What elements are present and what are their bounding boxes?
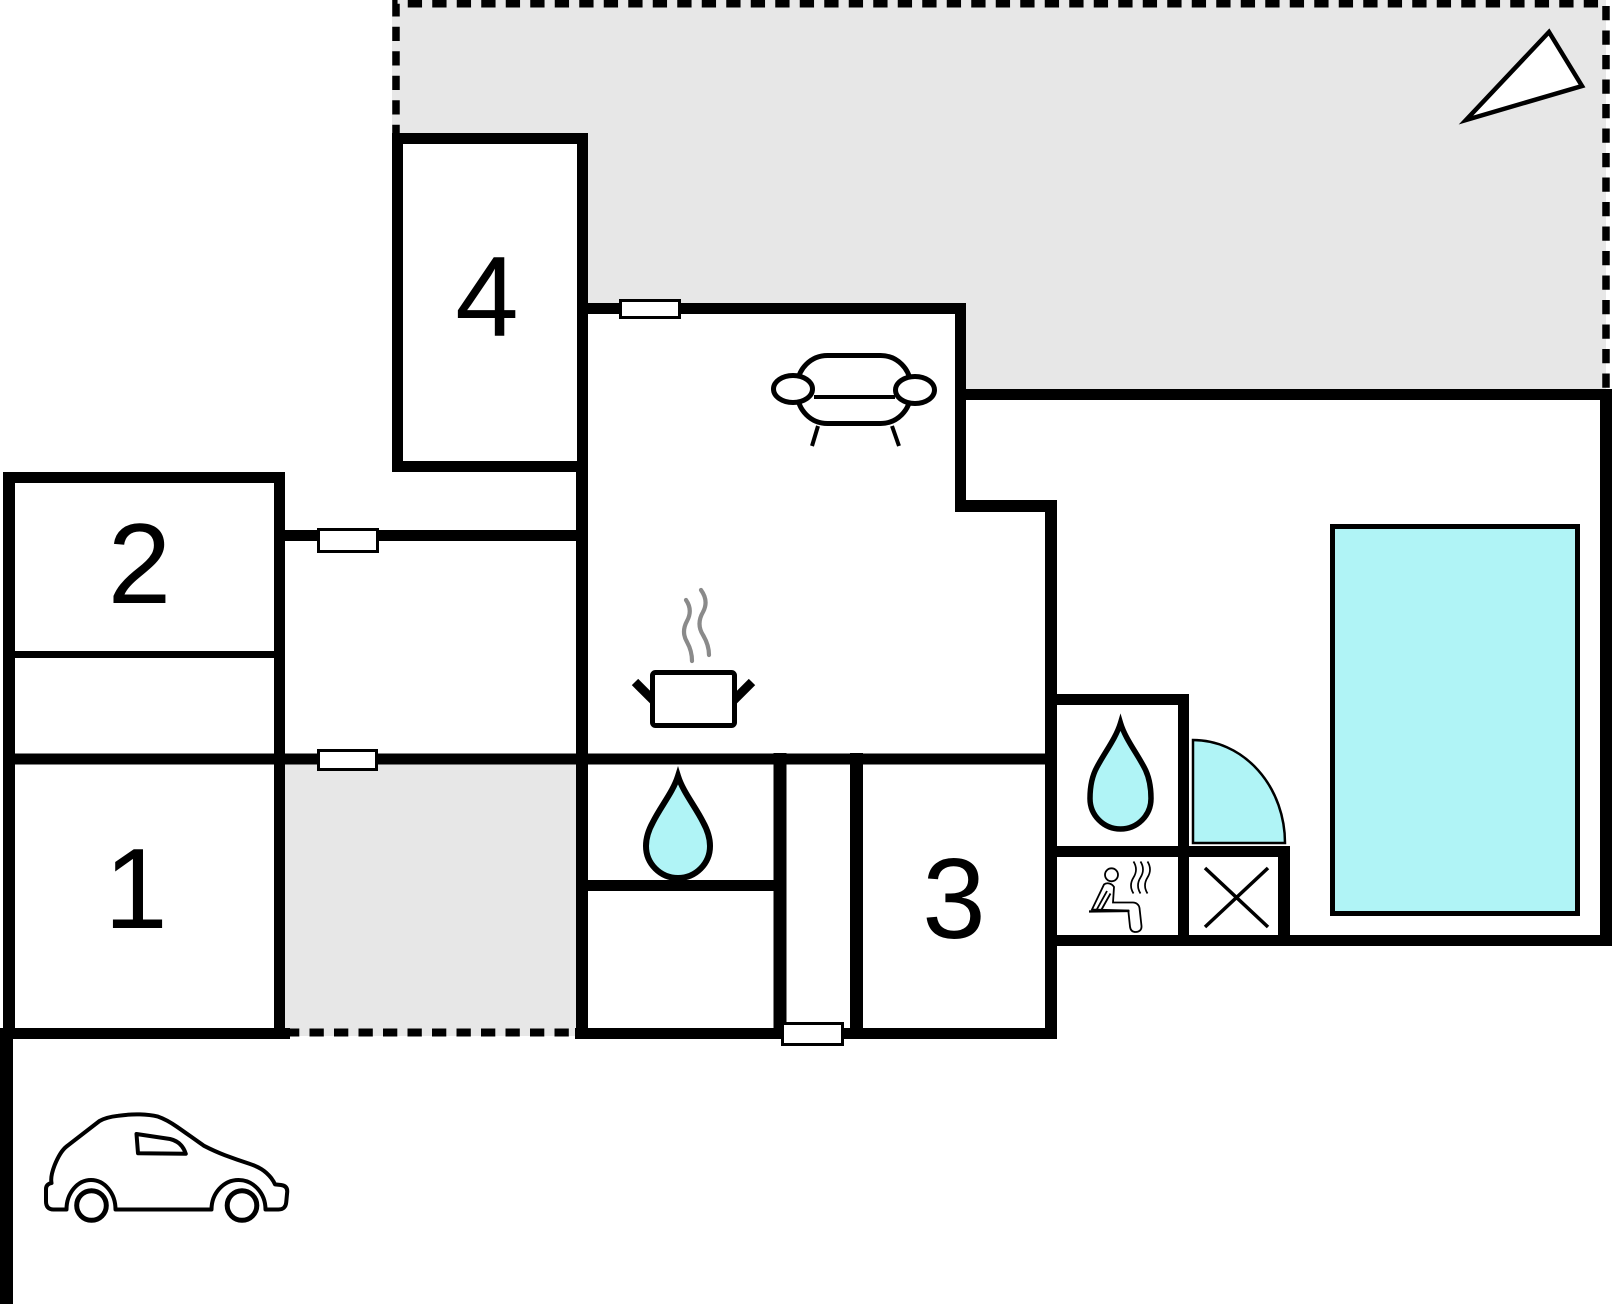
svg-text:3: 3 bbox=[922, 836, 985, 963]
svg-text:1: 1 bbox=[104, 826, 167, 953]
svg-text:4: 4 bbox=[455, 234, 518, 361]
svg-text:2: 2 bbox=[108, 501, 171, 628]
